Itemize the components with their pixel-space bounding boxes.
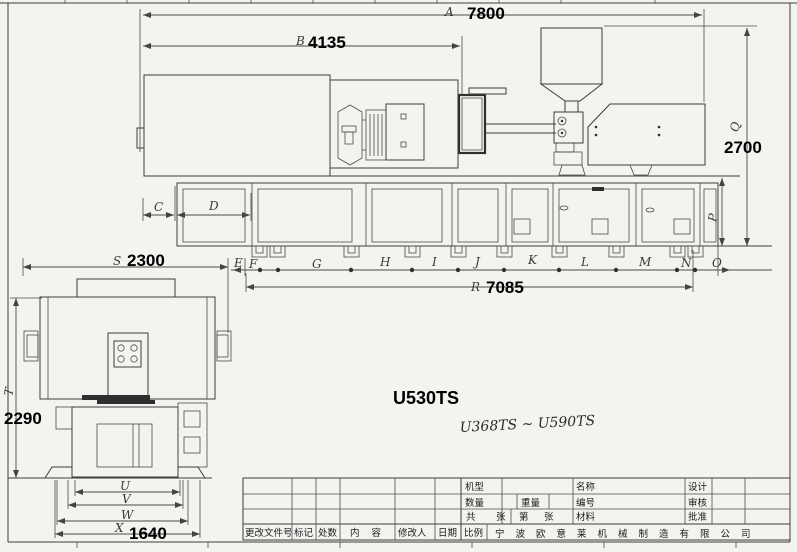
reviser-label: 修改人: [398, 527, 427, 539]
end-view: S 2300 T 2290: [1, 251, 231, 543]
feed-block: [554, 112, 583, 143]
dim-a-letter: A: [444, 5, 454, 19]
foot-letter-o: O: [712, 256, 722, 270]
pedestal-attachment: [178, 403, 207, 467]
dim-t-letter: T: [1, 385, 17, 397]
dim-q-letter: Q: [727, 120, 743, 133]
side-bracket-right: [217, 331, 231, 361]
dim-c-d: C D: [143, 186, 251, 221]
dim-injection-length: B 4135: [143, 33, 462, 95]
pedestal-foot-left: [45, 467, 72, 478]
change-file-label: 更改文件号: [245, 527, 293, 539]
company-name: 宁波欧意莱机械制造有限公司: [495, 528, 762, 540]
material-label: 材料: [576, 511, 596, 523]
design-label: 设计: [688, 481, 708, 493]
mark-label: 标记: [294, 527, 314, 539]
door-handle: [646, 208, 654, 212]
end-body: [40, 297, 215, 399]
dim-s-value: 2300: [127, 251, 165, 270]
check-label: 审核: [688, 497, 708, 509]
top-beam: [77, 279, 175, 297]
pedestal-top-band: [97, 400, 155, 404]
dim-r-letter: R: [470, 280, 480, 294]
dim-machine-width: S 2300: [23, 251, 228, 333]
dim-pedestal-widths: U V W X 1640: [55, 479, 200, 543]
dim-t-value: 2290: [4, 409, 42, 428]
dim-d-letter: D: [208, 199, 219, 213]
pedestal-foot-right: [178, 467, 205, 478]
tie-bar-bundle: [366, 110, 386, 160]
foot-position-dims: E F G H I J K L M N O: [231, 246, 772, 276]
door-handle: [560, 206, 568, 210]
dim-s-letter: S: [113, 254, 121, 268]
frame-tick-marks: [65, 0, 736, 548]
dim-u-letter: U: [120, 479, 131, 493]
carriage-cylinder: [556, 143, 574, 152]
hopper-neck: [565, 101, 578, 112]
foot-letter-m: M: [638, 255, 652, 269]
foot-letter-e: E: [233, 256, 243, 270]
sheet-label: 张: [544, 512, 554, 523]
sheet-frame: [0, 0, 797, 548]
hopper-body: [541, 28, 602, 84]
foot-letter-h: H: [379, 255, 391, 269]
drawing-canvas: A 7800 B 4135 Q 2700 P C: [0, 0, 797, 552]
total-label: 共: [466, 512, 476, 523]
dim-c-letter: C: [154, 200, 163, 214]
dim-end-height: T 2290: [1, 298, 42, 478]
code-label: 编号: [576, 497, 595, 509]
dim-b-value: 4135: [308, 33, 346, 52]
pedestal-box: [72, 407, 178, 477]
weight-label: 重量: [521, 497, 541, 509]
hopper-funnel: [541, 84, 602, 101]
vent-grille: [514, 219, 530, 234]
body-bottom-band: [82, 395, 150, 400]
dim-v-letter: V: [122, 492, 132, 506]
dim-b-letter: B: [295, 34, 305, 48]
carriage-base: [554, 152, 582, 165]
dim-a-value: 7800: [467, 4, 505, 23]
carriage-foot: [559, 165, 585, 175]
scale-label: 比例: [464, 527, 483, 539]
title-block: 机型 名称 设计 数量 重量 编号 审核 共 张 第 张 材料 批准 更改文件号…: [243, 478, 790, 540]
dim-x-letter: X: [114, 521, 124, 535]
date-label: 日期: [438, 528, 457, 539]
foot-letter-j: J: [472, 255, 481, 269]
vent-grille: [674, 219, 690, 234]
foot-letter-k: K: [527, 253, 538, 267]
door-top-rail: [469, 88, 506, 94]
machine-base: [144, 176, 772, 246]
foot-letter-i: I: [431, 255, 437, 269]
injection-unit: [485, 28, 705, 175]
operator-door: [459, 88, 506, 153]
model-range-note: U368TS ~ U590TS: [459, 413, 595, 436]
platen-cover: [386, 104, 424, 160]
engineering-drawing-sheet: A 7800 B 4135 Q 2700 P C: [0, 0, 797, 552]
foot-letter-l: L: [580, 255, 589, 269]
injection-housing: [588, 104, 705, 165]
approve-label: 批准: [688, 511, 708, 523]
model-label: U530TS: [393, 388, 459, 408]
dim-r-value: 7085: [486, 278, 524, 297]
toggle-guard: [330, 80, 458, 168]
quantity-label: 数量: [465, 497, 485, 509]
dim-q-value: 2700: [724, 138, 762, 157]
dim-base-height: P: [705, 178, 722, 246]
side-view: A 7800 B 4135 Q 2700 P C: [137, 4, 772, 297]
no-label: 第: [519, 511, 529, 523]
moving-platen: [338, 105, 362, 165]
foot-letter-n: N: [680, 256, 692, 270]
sheets-label: 张: [496, 512, 506, 523]
dim-x-value: 1640: [129, 524, 167, 543]
latch: [592, 187, 604, 191]
foot-letter-g: G: [312, 257, 322, 271]
side-bracket-left: [24, 331, 38, 361]
vent-grille: [592, 219, 608, 234]
content-label: 内容: [350, 527, 393, 539]
pedestal-door: [97, 424, 152, 467]
clamp-unit-cover: [144, 75, 330, 176]
housing-foot: [630, 165, 652, 175]
machine-type-label: 机型: [465, 481, 485, 493]
foot-letter-f: F: [248, 257, 258, 271]
dim-p-letter: P: [705, 211, 721, 224]
control-panel: [114, 341, 141, 367]
dim-machine-height: Q 2700: [604, 26, 762, 246]
clamp-side-tab: [137, 128, 144, 148]
name-label: 名称: [576, 481, 596, 493]
count-label: 处数: [318, 527, 338, 539]
dim-w-letter: W: [121, 508, 135, 522]
